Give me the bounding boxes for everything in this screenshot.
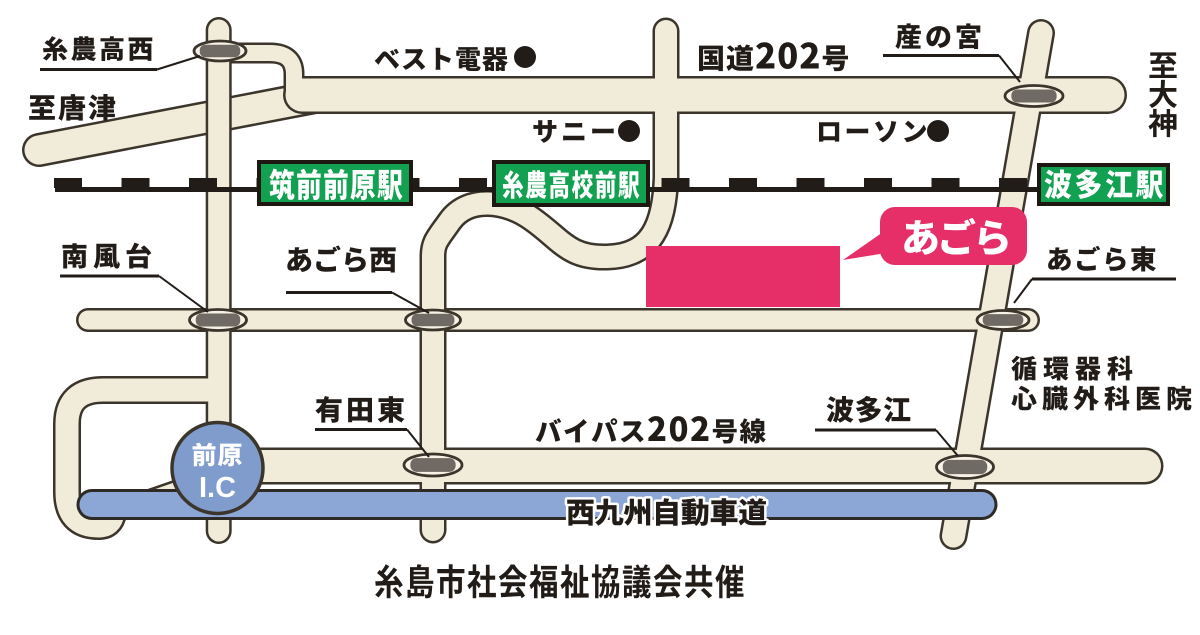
svg-text:I.C: I.C <box>199 472 236 504</box>
